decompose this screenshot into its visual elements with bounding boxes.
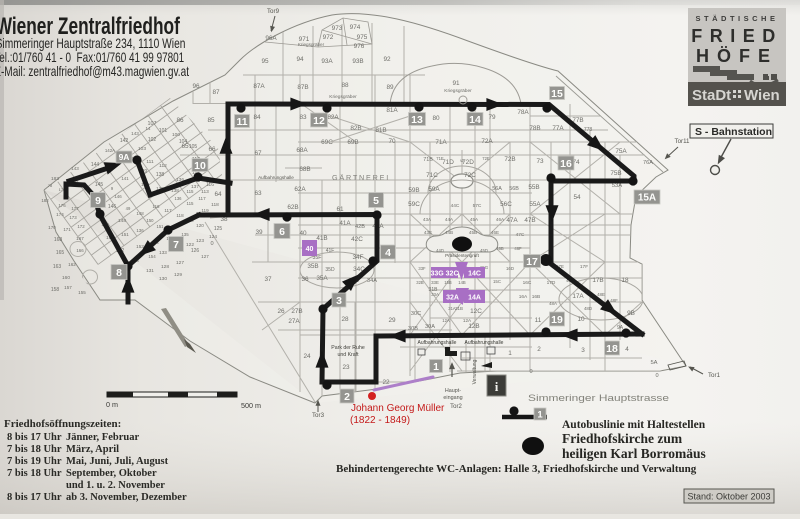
svg-text:E-Mail: zentralfriedhof@m43.ma: E-Mail: zentralfriedhof@m43.magwien.gv.a… bbox=[0, 63, 189, 79]
svg-text:71A: 71A bbox=[435, 139, 447, 146]
svg-text:Präsidentengruft: Präsidentengruft bbox=[445, 253, 479, 258]
svg-text:47A: 47A bbox=[506, 217, 518, 224]
svg-text:34A: 34A bbox=[367, 278, 377, 284]
svg-text:5A: 5A bbox=[650, 360, 657, 366]
svg-text:61: 61 bbox=[336, 206, 344, 213]
svg-text:69B: 69B bbox=[347, 139, 358, 146]
svg-text:33F: 33F bbox=[418, 266, 426, 271]
svg-text:974: 974 bbox=[350, 24, 361, 31]
svg-text:78A: 78A bbox=[517, 109, 529, 116]
svg-text:158: 158 bbox=[51, 287, 60, 293]
svg-text:0 m: 0 m bbox=[106, 400, 118, 409]
svg-text:153: 153 bbox=[136, 244, 144, 249]
svg-text:44D: 44D bbox=[436, 248, 444, 253]
svg-text:März, April: März, April bbox=[66, 444, 119, 455]
svg-text:Verwaltung: Verwaltung bbox=[472, 359, 478, 384]
svg-text:72C: 72C bbox=[464, 172, 476, 179]
svg-text:3: 3 bbox=[336, 295, 342, 307]
svg-text:78: 78 bbox=[48, 183, 53, 188]
svg-text:49: 49 bbox=[126, 206, 131, 211]
svg-text:17B: 17B bbox=[592, 277, 603, 284]
svg-text:168: 168 bbox=[54, 237, 63, 243]
svg-text:59A: 59A bbox=[428, 186, 440, 193]
svg-text:115: 115 bbox=[187, 201, 195, 206]
svg-text:8 bis 17 Uhr: 8 bis 17 Uhr bbox=[7, 432, 62, 443]
svg-text:46B: 46B bbox=[496, 246, 504, 251]
svg-text:41F: 41F bbox=[326, 248, 335, 254]
svg-text:124: 124 bbox=[209, 234, 217, 240]
svg-text:126: 126 bbox=[191, 248, 200, 254]
svg-text:4: 4 bbox=[385, 247, 391, 259]
svg-text:STÄDTISCHE: STÄDTISCHE bbox=[696, 14, 779, 23]
svg-text:84: 84 bbox=[253, 114, 261, 121]
svg-text:3: 3 bbox=[581, 347, 585, 354]
svg-text:2: 2 bbox=[537, 346, 541, 353]
svg-text:17F: 17F bbox=[580, 264, 588, 270]
svg-text:143: 143 bbox=[131, 131, 139, 136]
svg-text:73: 73 bbox=[536, 158, 544, 165]
svg-text:176: 176 bbox=[58, 203, 66, 208]
svg-text:14C: 14C bbox=[468, 271, 481, 278]
svg-text:41A: 41A bbox=[339, 220, 351, 227]
svg-text:105: 105 bbox=[189, 144, 198, 150]
svg-text:30A: 30A bbox=[425, 324, 435, 330]
svg-text:11: 11 bbox=[535, 317, 542, 324]
svg-text:71B: 71B bbox=[423, 157, 433, 163]
svg-text:157: 157 bbox=[64, 285, 72, 290]
svg-text:7 bis 18 Uhr: 7 bis 18 Uhr bbox=[7, 468, 62, 479]
svg-text:119: 119 bbox=[201, 208, 209, 213]
svg-text:Tor11: Tor11 bbox=[674, 138, 690, 145]
svg-text:148: 148 bbox=[136, 211, 144, 216]
svg-text:56B: 56B bbox=[509, 186, 519, 192]
svg-text:82B: 82B bbox=[350, 125, 361, 132]
svg-text:0: 0 bbox=[210, 241, 213, 247]
svg-text:166: 166 bbox=[76, 248, 84, 253]
svg-text:28: 28 bbox=[341, 316, 349, 323]
svg-text:16: 16 bbox=[560, 158, 572, 170]
svg-text:118: 118 bbox=[176, 213, 184, 218]
svg-text:123: 123 bbox=[196, 238, 204, 244]
svg-text:1: 1 bbox=[433, 361, 439, 373]
svg-text:12A: 12A bbox=[463, 318, 472, 323]
svg-text:4: 4 bbox=[625, 346, 629, 353]
svg-text:77A: 77A bbox=[552, 125, 564, 132]
svg-text:34F: 34F bbox=[352, 254, 363, 261]
svg-text:69C: 69C bbox=[321, 139, 333, 146]
svg-text:27B: 27B bbox=[291, 308, 302, 315]
svg-text:9: 9 bbox=[95, 195, 101, 207]
svg-text:und Kraft: und Kraft bbox=[337, 352, 359, 358]
svg-text:9A: 9A bbox=[119, 152, 130, 162]
svg-text:94: 94 bbox=[296, 56, 304, 63]
svg-text:87: 87 bbox=[212, 89, 220, 96]
svg-text:Park der Ruhe: Park der Ruhe bbox=[331, 345, 365, 351]
svg-text:127: 127 bbox=[176, 260, 184, 266]
svg-text:Simmeringer Hauptstrasse: Simmeringer Hauptstrasse bbox=[528, 393, 669, 404]
svg-text:13: 13 bbox=[411, 114, 423, 126]
svg-text:155: 155 bbox=[78, 290, 86, 295]
svg-text:116: 116 bbox=[206, 182, 214, 188]
svg-text:177: 177 bbox=[71, 206, 79, 211]
svg-text:Tor1: Tor1 bbox=[708, 372, 721, 379]
svg-text:StaDt: StaDt bbox=[692, 87, 731, 104]
svg-text:6: 6 bbox=[279, 226, 285, 238]
svg-text:40: 40 bbox=[299, 230, 307, 237]
svg-text:10: 10 bbox=[577, 316, 585, 323]
svg-text:35B: 35B bbox=[307, 263, 318, 270]
svg-text:81B: 81B bbox=[375, 127, 386, 134]
svg-text:130: 130 bbox=[159, 276, 167, 282]
svg-text:1: 1 bbox=[537, 409, 543, 420]
svg-text:10: 10 bbox=[194, 160, 206, 172]
svg-text:48A: 48A bbox=[549, 301, 557, 306]
svg-text:972: 972 bbox=[323, 34, 334, 41]
svg-text:54: 54 bbox=[573, 194, 581, 201]
svg-text:16B: 16B bbox=[532, 294, 541, 300]
svg-text:72D: 72D bbox=[462, 159, 474, 166]
svg-text:15C: 15C bbox=[493, 279, 501, 284]
svg-text:31A: 31A bbox=[448, 306, 456, 311]
svg-text:44B: 44B bbox=[445, 230, 453, 235]
svg-text:183: 183 bbox=[51, 176, 59, 182]
svg-text:80: 80 bbox=[432, 115, 440, 122]
svg-text:27A: 27A bbox=[288, 318, 300, 325]
svg-text:11: 11 bbox=[236, 116, 247, 128]
svg-text:133: 133 bbox=[159, 250, 167, 255]
svg-text:15A: 15A bbox=[638, 193, 656, 204]
svg-text:103: 103 bbox=[138, 146, 146, 152]
svg-text:128: 128 bbox=[161, 264, 169, 270]
svg-text:FRIED: FRIED bbox=[691, 26, 783, 46]
svg-text:102: 102 bbox=[148, 137, 157, 143]
svg-text:53A: 53A bbox=[612, 183, 622, 189]
svg-text:138: 138 bbox=[156, 172, 165, 178]
svg-text:95: 95 bbox=[261, 58, 269, 65]
svg-text:162: 162 bbox=[68, 262, 76, 267]
svg-text:62A: 62A bbox=[294, 186, 306, 193]
svg-text:32B: 32B bbox=[416, 280, 424, 285]
svg-text:Tor9: Tor9 bbox=[267, 8, 280, 15]
svg-text:17D: 17D bbox=[547, 280, 556, 286]
svg-text:31B: 31B bbox=[455, 306, 463, 311]
svg-text:142A: 142A bbox=[105, 148, 115, 153]
svg-text:68A: 68A bbox=[296, 147, 308, 154]
svg-text:141: 141 bbox=[121, 176, 129, 181]
svg-text:1: 1 bbox=[508, 350, 512, 357]
svg-text:59C: 59C bbox=[408, 201, 420, 208]
svg-text:Friedhofsöffnungszeiten:: Friedhofsöffnungszeiten: bbox=[4, 418, 121, 430]
svg-text:92: 92 bbox=[383, 56, 391, 63]
svg-text:7 bis 19 Uhr: 7 bis 19 Uhr bbox=[7, 456, 62, 467]
svg-text:16D: 16D bbox=[506, 266, 514, 271]
svg-text:89: 89 bbox=[386, 84, 394, 91]
svg-text:93B: 93B bbox=[352, 58, 363, 65]
svg-text:0: 0 bbox=[529, 369, 532, 375]
svg-text:47B: 47B bbox=[524, 217, 535, 224]
svg-text:71E: 71E bbox=[436, 156, 444, 161]
svg-text:18: 18 bbox=[621, 277, 629, 284]
svg-text:Haupt-: Haupt- bbox=[445, 388, 461, 394]
svg-text:43E: 43E bbox=[424, 230, 432, 235]
svg-text:7: 7 bbox=[173, 239, 179, 251]
svg-text:14: 14 bbox=[146, 126, 151, 131]
svg-text:174: 174 bbox=[56, 212, 64, 217]
svg-text:55A: 55A bbox=[529, 201, 541, 208]
svg-text:101: 101 bbox=[159, 128, 168, 134]
svg-text:63: 63 bbox=[254, 190, 262, 197]
svg-text:9B: 9B bbox=[627, 310, 635, 317]
svg-text:125: 125 bbox=[214, 226, 223, 232]
svg-text:115: 115 bbox=[187, 189, 195, 194]
svg-text:91: 91 bbox=[452, 80, 460, 87]
svg-text:12B: 12B bbox=[468, 323, 479, 330]
svg-text:8 bis 17 Uhr: 8 bis 17 Uhr bbox=[7, 492, 62, 503]
svg-text:Jänner, Februar: Jänner, Februar bbox=[66, 432, 139, 443]
svg-text:39: 39 bbox=[255, 229, 263, 236]
svg-text:96A: 96A bbox=[265, 35, 277, 42]
svg-text:45A: 45A bbox=[470, 217, 479, 222]
svg-text:Johann Georg Müller: Johann Georg Müller bbox=[351, 403, 445, 414]
svg-text:33E: 33E bbox=[431, 280, 439, 285]
svg-text:2: 2 bbox=[344, 391, 350, 403]
svg-text:Friedhofskirche zum: Friedhofskirche zum bbox=[562, 431, 683, 446]
svg-text:136: 136 bbox=[175, 196, 183, 201]
svg-text:18: 18 bbox=[606, 343, 618, 355]
svg-text:64: 64 bbox=[214, 191, 222, 198]
svg-text:151: 151 bbox=[157, 224, 165, 229]
svg-text:160: 160 bbox=[62, 275, 70, 281]
svg-text:35D: 35D bbox=[325, 267, 335, 273]
svg-text:170: 170 bbox=[48, 225, 56, 230]
svg-text:120: 120 bbox=[196, 223, 204, 228]
svg-text:47C: 47C bbox=[516, 232, 525, 238]
svg-text:Aufbahrungshalle: Aufbahrungshalle bbox=[258, 175, 294, 180]
svg-text:87A: 87A bbox=[253, 83, 265, 90]
svg-text:88: 88 bbox=[341, 82, 349, 89]
svg-text:500 m: 500 m bbox=[241, 401, 261, 410]
svg-text:16C: 16C bbox=[523, 280, 532, 286]
svg-text:172: 172 bbox=[77, 224, 85, 229]
svg-text:40: 40 bbox=[306, 246, 314, 253]
svg-text:75B: 75B bbox=[610, 170, 621, 177]
svg-text:72A: 72A bbox=[481, 138, 493, 145]
svg-text:86: 86 bbox=[176, 117, 184, 124]
svg-text:Kriegsgräber: Kriegsgräber bbox=[298, 42, 325, 47]
svg-text:12: 12 bbox=[313, 115, 325, 127]
svg-text:76A: 76A bbox=[643, 160, 653, 166]
svg-text:104: 104 bbox=[179, 139, 188, 145]
svg-text:57C: 57C bbox=[473, 203, 482, 209]
svg-text:44C: 44C bbox=[451, 203, 460, 209]
svg-text:33A: 33A bbox=[431, 292, 439, 297]
svg-text:55B: 55B bbox=[528, 184, 539, 191]
svg-text:165: 165 bbox=[56, 250, 65, 256]
svg-text:72E: 72E bbox=[482, 156, 490, 161]
svg-text:42B: 42B bbox=[355, 224, 365, 230]
svg-text:146: 146 bbox=[114, 194, 122, 199]
svg-text:182: 182 bbox=[41, 198, 49, 203]
svg-text:Behindertengerechte WC-Anlagen: Behindertengerechte WC-Anlagen: Halle 3,… bbox=[336, 463, 697, 475]
svg-text:Autobuslinie mit Haltestellen: Autobuslinie mit Haltestellen bbox=[562, 419, 706, 431]
svg-text:975: 975 bbox=[357, 34, 368, 41]
svg-text:(1822 - 1849): (1822 - 1849) bbox=[350, 415, 410, 426]
svg-text:973: 973 bbox=[332, 25, 343, 32]
svg-text:GÄRTNEREI: GÄRTNEREI bbox=[332, 173, 390, 182]
svg-text:HÖFE: HÖFE bbox=[696, 46, 778, 66]
svg-text:Wien: Wien bbox=[744, 87, 780, 104]
svg-text:87B: 87B bbox=[297, 84, 308, 91]
svg-text:0: 0 bbox=[655, 373, 658, 379]
svg-text:173: 173 bbox=[69, 215, 77, 220]
svg-text:32A: 32A bbox=[446, 295, 459, 302]
svg-text:33G 32C: 33G 32C bbox=[430, 271, 458, 278]
svg-text:46A: 46A bbox=[496, 217, 505, 222]
svg-text:14B: 14B bbox=[458, 280, 466, 285]
svg-text:Aufbahrungshalle: Aufbahrungshalle bbox=[465, 340, 504, 346]
svg-text:48F: 48F bbox=[610, 298, 618, 303]
svg-text:und 1. u. 2. November: und 1. u. 2. November bbox=[66, 480, 165, 491]
svg-text:16A: 16A bbox=[519, 294, 528, 300]
svg-text:i: i bbox=[495, 379, 499, 394]
svg-text:71C: 71C bbox=[426, 172, 438, 179]
svg-text:118: 118 bbox=[211, 202, 219, 208]
svg-text:154: 154 bbox=[148, 254, 156, 259]
svg-text:S - Bahnstation: S - Bahnstation bbox=[695, 126, 772, 138]
svg-text:43A: 43A bbox=[423, 217, 432, 222]
svg-text:976: 976 bbox=[354, 43, 365, 50]
svg-text:26: 26 bbox=[277, 308, 285, 315]
svg-text:150: 150 bbox=[147, 218, 155, 223]
svg-text:23: 23 bbox=[342, 364, 350, 371]
svg-text:163: 163 bbox=[53, 264, 62, 270]
svg-text:17: 17 bbox=[526, 256, 538, 268]
svg-text:41B: 41B bbox=[316, 235, 327, 242]
svg-text:30B: 30B bbox=[408, 326, 418, 332]
svg-text:171: 171 bbox=[63, 227, 71, 232]
svg-text:Stand: Oktober 2003: Stand: Oktober 2003 bbox=[687, 492, 770, 502]
svg-text:14: 14 bbox=[469, 114, 481, 126]
svg-text:68B: 68B bbox=[299, 166, 310, 173]
svg-text:22: 22 bbox=[382, 379, 390, 386]
svg-text:71D: 71D bbox=[442, 159, 454, 166]
svg-text:29: 29 bbox=[388, 317, 396, 324]
svg-text:117: 117 bbox=[164, 208, 172, 213]
svg-text:44A: 44A bbox=[445, 217, 454, 222]
svg-text:48E: 48E bbox=[597, 292, 605, 297]
svg-text:35A: 35A bbox=[316, 275, 328, 282]
svg-text:79: 79 bbox=[488, 114, 496, 121]
svg-text:14A: 14A bbox=[468, 295, 481, 302]
svg-text:56A: 56A bbox=[492, 186, 502, 192]
svg-text:113: 113 bbox=[201, 189, 209, 195]
svg-text:7 bis 18 Uhr: 7 bis 18 Uhr bbox=[7, 444, 62, 455]
svg-text:117: 117 bbox=[198, 196, 206, 201]
svg-text:48D: 48D bbox=[584, 306, 592, 311]
svg-text:75A: 75A bbox=[615, 148, 627, 155]
svg-text:15B: 15B bbox=[444, 280, 452, 285]
svg-text:46E: 46E bbox=[491, 230, 499, 235]
svg-text:67: 67 bbox=[254, 150, 262, 157]
svg-text:42C: 42C bbox=[351, 236, 363, 243]
svg-text:8: 8 bbox=[116, 267, 122, 279]
svg-text:W: W bbox=[460, 158, 464, 163]
svg-text:heiligen Karl Borromäus: heiligen Karl Borromäus bbox=[562, 446, 706, 461]
svg-text:eingang: eingang bbox=[443, 395, 462, 401]
svg-text:136: 136 bbox=[136, 228, 144, 233]
svg-text:30C: 30C bbox=[411, 311, 421, 317]
svg-text:September, Oktober: September, Oktober bbox=[66, 468, 157, 479]
svg-text:Mai, Juni, Juli, August: Mai, Juni, Juli, August bbox=[66, 456, 169, 467]
svg-text:Kriegsgräber: Kriegsgräber bbox=[329, 94, 357, 100]
svg-text:12A: 12A bbox=[442, 318, 450, 323]
svg-text:112: 112 bbox=[159, 163, 167, 169]
svg-text:46F: 46F bbox=[514, 246, 522, 251]
svg-text:116: 116 bbox=[153, 204, 161, 209]
svg-text:Aufbahrungshalle: Aufbahrungshalle bbox=[418, 340, 457, 346]
svg-text:15: 15 bbox=[551, 88, 563, 100]
svg-text:ab 3. November, Dezember: ab 3. November, Dezember bbox=[66, 492, 187, 503]
svg-text:143: 143 bbox=[71, 166, 79, 171]
svg-text:127: 127 bbox=[201, 254, 209, 259]
svg-text:144: 144 bbox=[91, 162, 100, 168]
svg-text:Tor2: Tor2 bbox=[450, 404, 462, 410]
svg-text:145: 145 bbox=[95, 182, 104, 188]
svg-text:100: 100 bbox=[172, 132, 180, 138]
svg-text:Tor3: Tor3 bbox=[312, 412, 325, 419]
svg-text:167: 167 bbox=[76, 236, 84, 241]
svg-text:56C: 56C bbox=[500, 201, 512, 208]
svg-text:70: 70 bbox=[388, 138, 396, 145]
svg-text:146: 146 bbox=[108, 204, 117, 210]
svg-text:24: 24 bbox=[303, 353, 311, 360]
svg-text:45B: 45B bbox=[469, 230, 477, 235]
svg-text:5: 5 bbox=[373, 195, 379, 207]
svg-text:96: 96 bbox=[192, 83, 200, 90]
svg-text:148: 148 bbox=[118, 218, 126, 224]
svg-text:131: 131 bbox=[146, 268, 154, 273]
svg-text:81A: 81A bbox=[386, 107, 398, 114]
svg-text:36: 36 bbox=[301, 276, 309, 283]
svg-text:19: 19 bbox=[551, 314, 563, 326]
svg-text:142: 142 bbox=[120, 138, 129, 144]
svg-text:82A: 82A bbox=[327, 114, 339, 121]
svg-text:37: 37 bbox=[264, 276, 272, 283]
svg-text:66: 66 bbox=[208, 146, 216, 153]
svg-text:83: 83 bbox=[299, 114, 307, 121]
svg-text:78B: 78B bbox=[529, 125, 540, 132]
svg-text:85: 85 bbox=[207, 117, 215, 124]
svg-text:93A: 93A bbox=[321, 58, 333, 65]
svg-text:45D: 45D bbox=[480, 248, 488, 253]
svg-text:Kriegsgräber: Kriegsgräber bbox=[444, 88, 472, 94]
svg-text:72B: 72B bbox=[504, 156, 515, 163]
svg-text:59B: 59B bbox=[408, 187, 419, 194]
svg-text:62B: 62B bbox=[287, 204, 298, 211]
svg-text:17A: 17A bbox=[572, 293, 584, 300]
svg-text:12C: 12C bbox=[470, 308, 482, 315]
svg-text:151: 151 bbox=[121, 232, 129, 237]
svg-text:111: 111 bbox=[146, 159, 154, 165]
svg-text:129: 129 bbox=[174, 272, 182, 278]
